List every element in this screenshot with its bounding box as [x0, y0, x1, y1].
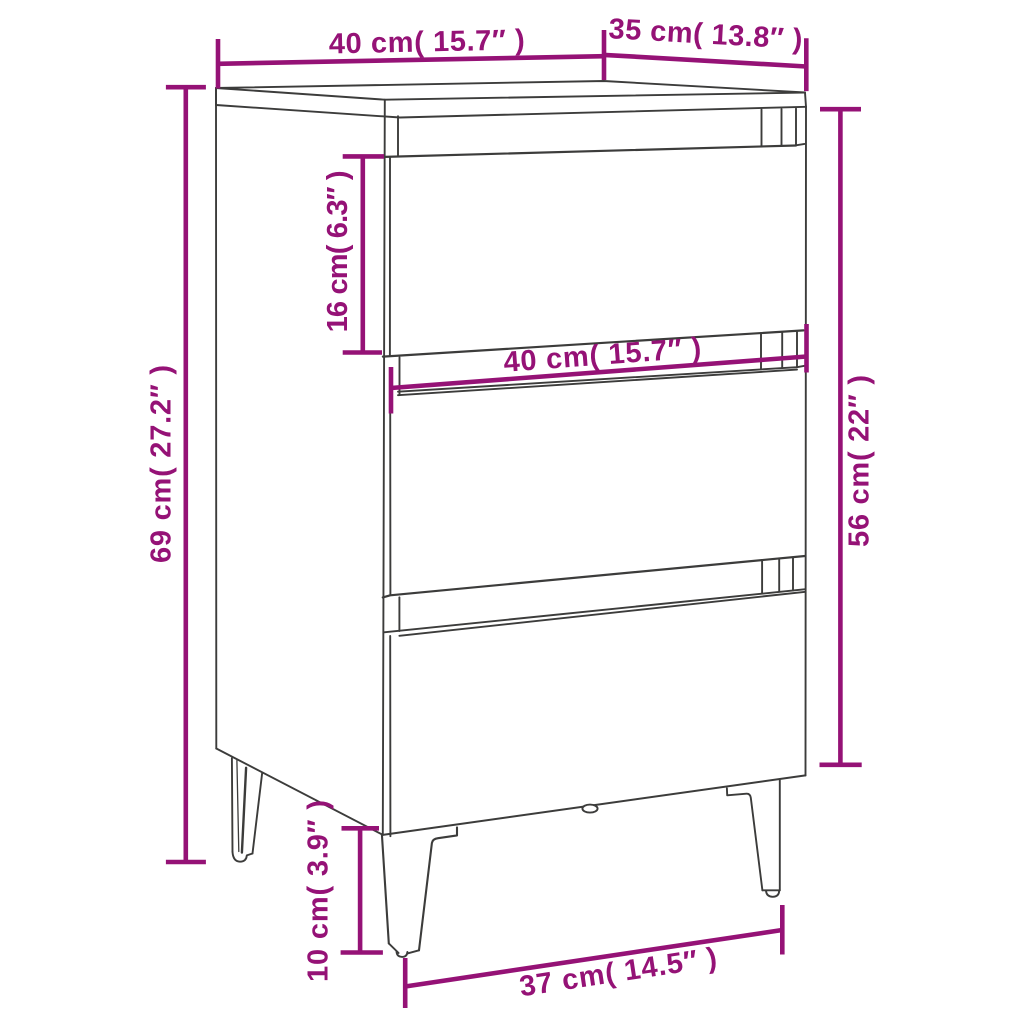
svg-text:16 cm( 6.3″ ): 16 cm( 6.3″ )	[322, 170, 354, 332]
svg-text:69 cm( 27.2″ ): 69 cm( 27.2″ )	[145, 365, 177, 563]
svg-text:56 cm( 22″ ): 56 cm( 22″ )	[843, 375, 875, 547]
svg-text:10 cm( 3.9″ ): 10 cm( 3.9″ )	[303, 800, 335, 982]
svg-text:40 cm( 15.7″ ): 40 cm( 15.7″ )	[328, 24, 525, 60]
